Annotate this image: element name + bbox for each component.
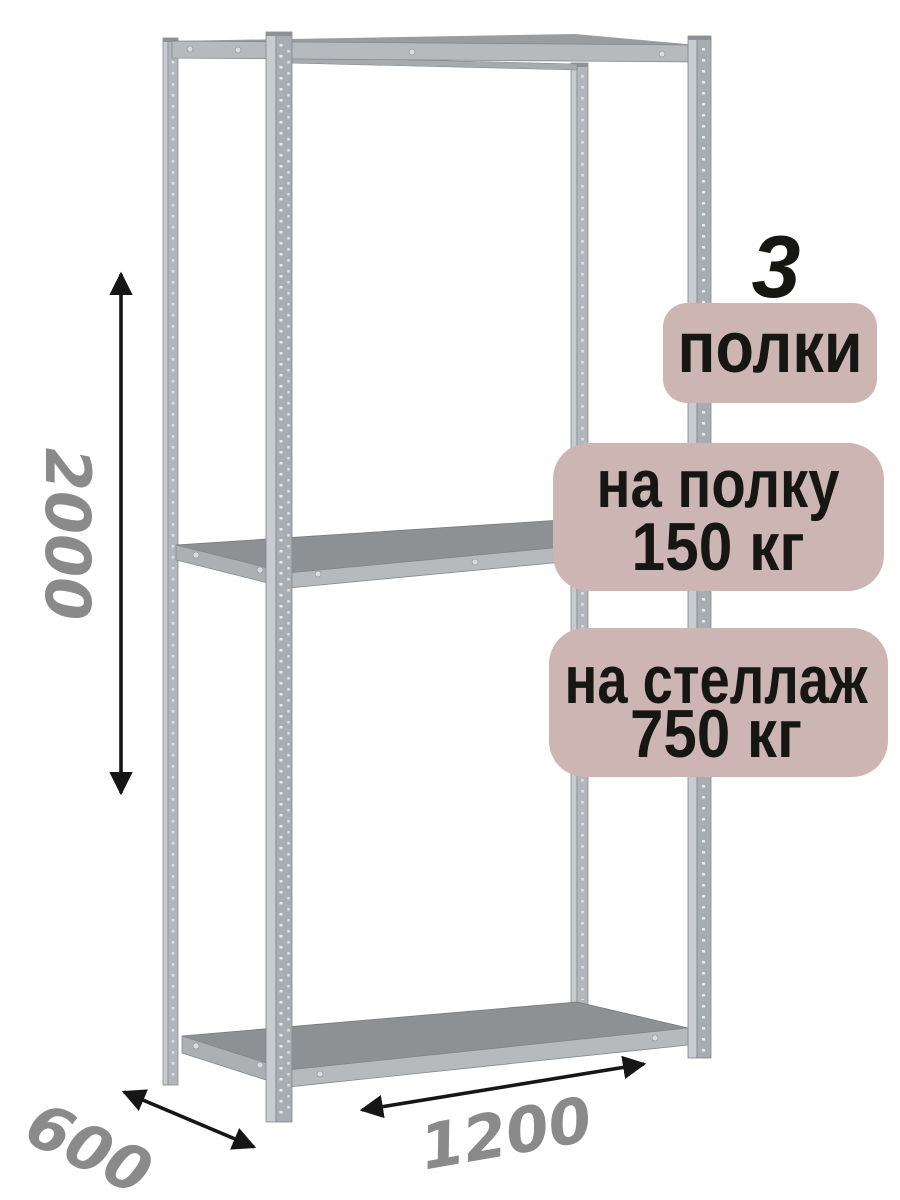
top-shelf-bolt — [187, 46, 193, 52]
middle-shelf-bolt — [315, 571, 321, 577]
bottom-shelf-bolt — [257, 1062, 263, 1068]
shelf-count-number: 3 — [752, 217, 801, 316]
bottom-shelf-bolt — [193, 1043, 199, 1049]
front-left-post-side-face — [266, 32, 276, 1122]
height-value: 2000 — [31, 448, 104, 621]
top-shelf — [172, 34, 697, 62]
front-left-post-cap — [266, 32, 292, 36]
top-shelf-front-edge — [172, 41, 697, 62]
width-dimension: 1200 — [362, 1064, 644, 1184]
bottom-shelf — [182, 1002, 688, 1087]
front-left-post — [266, 32, 292, 1122]
shelf-count-badge: полки — [663, 303, 877, 403]
rack-load-line2: 750 кг — [630, 696, 802, 772]
bottom-shelf-bolt — [317, 1071, 323, 1077]
shelving-rack-diagram: 2000 600 1200 3 полки на полку 150 кг на… — [0, 0, 900, 1200]
front-right-post-cap — [688, 36, 711, 40]
depth-dimension: 600 — [15, 1087, 254, 1200]
middle-shelf-bolt — [257, 567, 263, 573]
rear-left-post — [163, 38, 178, 1085]
rack-load-badge: на стеллаж 750 кг — [549, 628, 888, 777]
top-shelf-bolt — [659, 51, 665, 57]
shelf-load-badge: на полку 150 кг — [553, 443, 884, 591]
bottom-shelf-bolt — [652, 1035, 658, 1041]
top-shelf-bolt — [409, 49, 415, 55]
rear-left-post-edge — [163, 38, 168, 1085]
height-dimension: 2000 — [31, 274, 121, 793]
middle-shelf-bolt — [193, 552, 199, 558]
middle-shelf-bolt — [472, 559, 478, 565]
top-shelf-bolt — [235, 47, 241, 53]
depth-value: 600 — [15, 1087, 163, 1200]
shelf-load-line2: 150 кг — [632, 509, 805, 585]
shelf-count-label: полки — [678, 308, 863, 388]
product-image: 2000 600 1200 3 полки на полку 150 кг на… — [0, 0, 900, 1200]
